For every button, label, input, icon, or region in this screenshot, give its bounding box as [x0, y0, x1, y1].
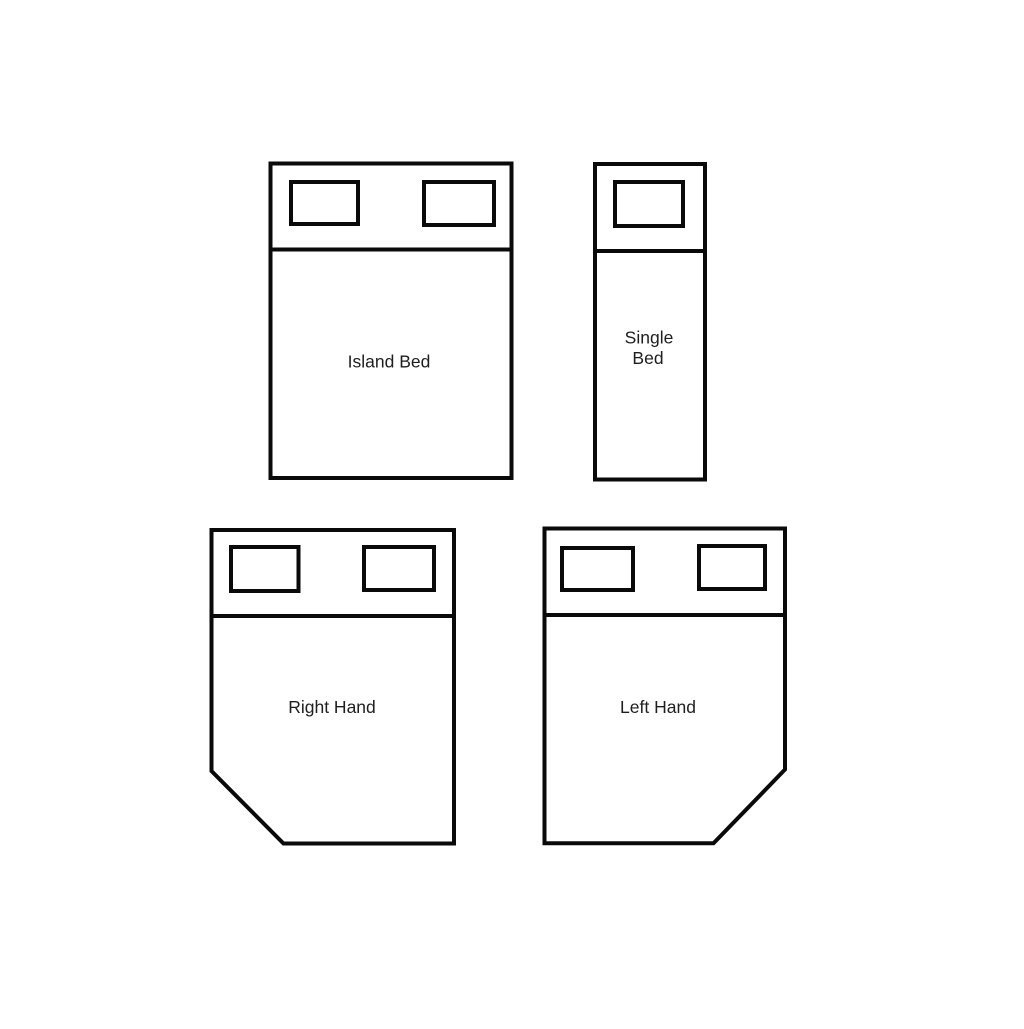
svg-text:Single: Single: [625, 327, 674, 347]
svg-text:Right Hand: Right Hand: [288, 697, 376, 717]
svg-text:Bed: Bed: [632, 348, 663, 368]
svg-text:Left Hand: Left Hand: [620, 697, 696, 717]
svg-text:Island Bed: Island Bed: [348, 352, 431, 372]
